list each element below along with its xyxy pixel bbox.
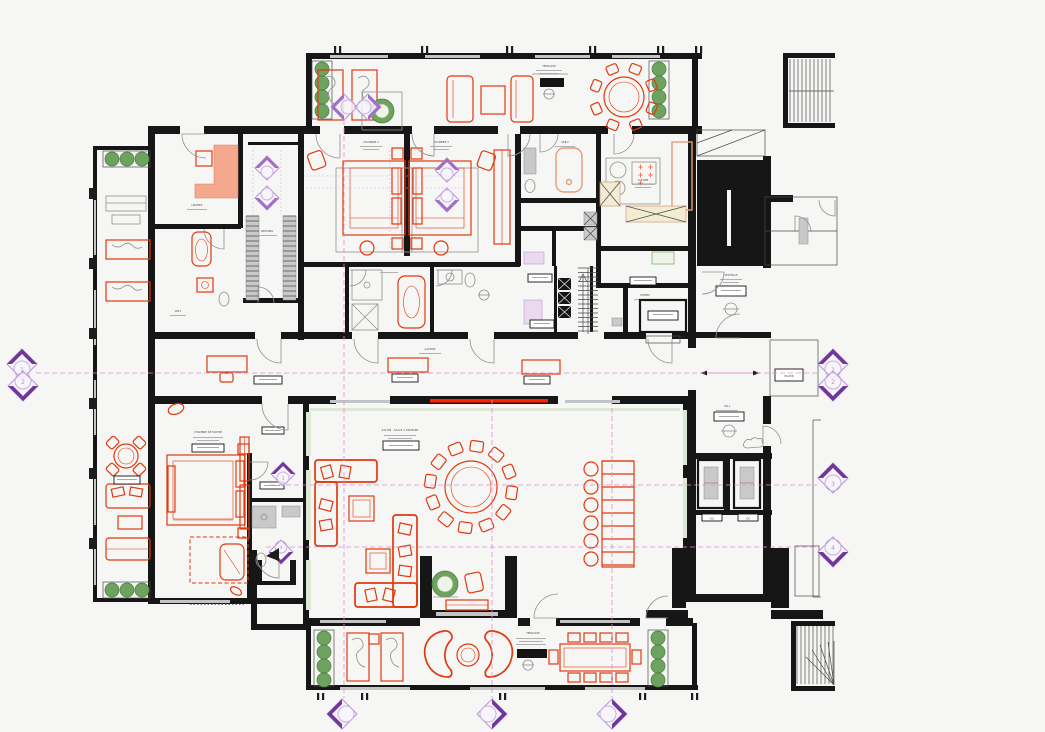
south-terrace: TERRASSE	[314, 630, 668, 687]
wall-openings-bg-r-17	[498, 126, 520, 134]
bath-2-grayf-r-2	[524, 148, 536, 174]
west-balcony-green-g-7-plant-1	[120, 152, 134, 166]
north-terrace-green-g-1-plant-2	[315, 90, 329, 104]
south-terrace-red-r-27	[584, 673, 596, 682]
wall-openings-bg-r-13	[640, 618, 666, 626]
south-terrace-red-r-4	[347, 633, 369, 681]
exterior-walls-wall-r-17	[552, 228, 556, 266]
south-terrace-green-g-1	[317, 631, 331, 687]
west-balcony-green-g-9-plant-0	[105, 583, 119, 597]
dimension-ticks-blkT-r-4	[506, 46, 508, 53]
service-rooms-labLn-r-3	[532, 277, 548, 278]
southeast-stairs-thin-p-1	[806, 641, 834, 685]
bath-2-salmonO-c-1	[567, 180, 572, 185]
wall-openings-bg-r-2	[352, 332, 378, 339]
living-dining-paleG-r-1	[306, 412, 311, 456]
bedroom-2-red-r-6	[392, 148, 403, 159]
bedroom-2-red-c-8	[360, 241, 374, 255]
exterior-walls-wall-r-2	[692, 53, 698, 130]
dimension-ticks-blkT-r-16	[499, 693, 501, 700]
exterior-walls-wall-r-15	[518, 198, 600, 203]
west-suite-salmonF-p-0	[195, 145, 238, 198]
living-dining-red-r-15	[339, 465, 351, 479]
gallery-corridor-red-r-4	[388, 358, 428, 372]
wall-openings-bg-r-14	[180, 126, 204, 134]
kitchen-gray-c-1	[610, 162, 626, 178]
living-dining-labLn-r-8	[384, 435, 416, 436]
bedroom-3-lab-t-12: CHAMBRE 3	[433, 140, 449, 144]
south-terrace-labLn-r-14	[516, 638, 546, 639]
exterior-walls-wall-r-24	[247, 498, 305, 502]
south-terrace-green-g-3-plant-3	[651, 673, 665, 687]
west-balcony-blkT-r-2	[89, 328, 97, 339]
living-dining-red-cr-31-chair-5	[426, 494, 441, 510]
exterior-walls-wall-r-56	[783, 123, 835, 128]
dimension-ticks-blkT-r-21	[696, 693, 698, 700]
west-balcony-blkT-r-3	[89, 398, 97, 409]
gallery-corridor-labLn-r-3	[259, 379, 277, 380]
northeast-core	[697, 59, 834, 156]
exterior-walls-wall-r-45	[505, 556, 517, 618]
south-terrace-red-r-23	[584, 633, 596, 642]
west-balcony-labLn-r-27	[117, 479, 137, 480]
kitchen-labLn-r-20	[635, 187, 651, 188]
master-suite-red-r-10	[168, 466, 175, 512]
entry-hall-labLn-r-2	[634, 280, 652, 281]
living-dining-red2-r-21	[355, 583, 417, 607]
south-terrace-green-g-1-plant-0	[317, 631, 331, 645]
entry-hall-labLn-r-7	[653, 314, 673, 315]
west-suite-lab-t-9: DRESSING	[261, 230, 274, 233]
south-terrace-red-r-7	[381, 633, 403, 681]
windows-win-r-7	[94, 200, 96, 255]
living-dining-paleG-r-3	[306, 560, 311, 610]
bedroom-2-red-r-4	[392, 198, 401, 224]
wall-openings-bg-r-19	[688, 612, 700, 617]
entry-hall-labBox-r-6	[648, 311, 678, 320]
south-terrace-green-g-1-plant-3	[317, 673, 331, 687]
bedroom-3-labLn-r-14	[433, 149, 449, 150]
living-dining-red-r-24	[398, 565, 411, 577]
master-suite-labLn-r-1	[193, 437, 223, 438]
living-dining-red-cr-31-chair-8	[448, 442, 464, 457]
elevator-block-lab-t-14: ASC	[710, 518, 715, 521]
west-suite-grayf-r-7	[283, 216, 296, 300]
living-dining-red-cr-31-chair-4	[437, 511, 454, 527]
west-balcony-blkT-r-0	[89, 188, 97, 199]
south-terrace-redT-r-21	[564, 648, 626, 667]
south-terrace-red-r-31	[632, 650, 641, 664]
living-dining-red-cr-31-chair-6	[424, 474, 436, 488]
kitchen-labLn-r-19	[632, 184, 654, 185]
living-dining-red-cr-31-chair-9	[470, 440, 484, 452]
south-terrace-red-r-24	[600, 633, 612, 642]
wall-openings-bg-r-3	[468, 332, 494, 339]
living-dining-red-r-22	[398, 523, 412, 535]
exterior-walls-wall-r-66	[697, 160, 767, 266]
exterior-walls-wall-r-32	[680, 594, 776, 602]
grid-markers-mkT-t-15: 2	[831, 379, 835, 386]
dimension-ticks-blkT-r-19	[644, 693, 646, 700]
master-suite-redT-l-16	[224, 550, 240, 574]
living-dining-paleG-r-2	[306, 470, 311, 540]
north-terrace-red-r-14	[511, 76, 533, 122]
master-bathroom-grayf-r-10	[282, 506, 300, 517]
wall-openings-bg-r-11	[420, 618, 518, 626]
bedroom-3-red-c-8	[434, 241, 448, 255]
windows-win-r-3	[612, 55, 660, 58]
exterior-walls-wall-r-55	[783, 53, 835, 58]
vestibule-lobby-labLn-r-4	[721, 290, 741, 291]
west-suite-labLn-r-10	[257, 235, 277, 236]
east-outline	[795, 420, 821, 597]
living-dining-red-cr-31-chair-0	[505, 486, 517, 500]
west-balcony-red-c-17	[114, 444, 138, 468]
doors-door-arc-4	[540, 134, 558, 152]
living-dining-red-r-32	[602, 461, 634, 567]
windows-win-r-12	[330, 400, 390, 403]
exterior-walls-wall-r-13	[298, 262, 520, 267]
west-balcony-sq-p-16	[112, 285, 142, 290]
exterior-walls	[93, 53, 835, 691]
west-balcony-red-cr-19	[105, 435, 146, 476]
windows-win-r-17	[436, 612, 498, 616]
west-suite-redT-e-12	[196, 239, 208, 261]
wall-openings-bg-r-12	[530, 618, 556, 626]
fireplace-nook	[432, 571, 488, 610]
north-terrace-red-r-13	[481, 86, 505, 114]
west-balcony-blkT-r-5	[89, 538, 97, 549]
bedroom-3-red-r-6	[411, 148, 422, 159]
north-terrace-green-g-3-plant-2	[652, 90, 666, 104]
south-terrace-redT-c-12	[461, 648, 475, 662]
dimension-ticks-blkT-r-20	[691, 693, 693, 700]
northeast-rooms-door-arc-4	[819, 200, 835, 216]
bedroom-3-red-r-9	[476, 150, 496, 171]
exterior-walls-wall-r-64	[290, 560, 296, 584]
north-terrace-red-cr-25-chair-4	[590, 79, 602, 93]
south-terrace-lab-t-13: TERRASSE	[526, 631, 540, 635]
south-terrace-green-g-3	[651, 631, 665, 687]
entry-hall-greenO-r-0	[652, 252, 674, 264]
living-dining-red-c-29	[445, 461, 497, 513]
north-terrace-redT-c-24	[609, 82, 639, 112]
bath-2-gray-e-3	[525, 180, 535, 193]
bath-2-lab-t-4: SDB 2	[561, 141, 569, 144]
north-terrace-labLn-r-22	[539, 73, 559, 74]
grid-markers-mkT-t-23: 4	[831, 545, 835, 552]
dimension-ticks-blkT-r-10	[695, 46, 697, 53]
south-terrace-red-r-28	[600, 673, 612, 682]
living-dining-red2-r-13	[315, 482, 337, 546]
north-terrace-green-g-1-plant-1	[315, 76, 329, 90]
living-dining-red-r-14	[321, 465, 334, 479]
bedroom-2: CHAMBRE 2	[307, 140, 412, 255]
elevator-block-gray-p-6	[743, 438, 763, 448]
master-suite-lab-t-0: CHAMBRE DE MAITRE	[194, 430, 222, 434]
windows	[94, 55, 660, 690]
windows-win-r-11	[94, 545, 96, 585]
north-terrace-red-r-11	[447, 76, 473, 122]
grid-markers-mkT-t-19: 3	[831, 481, 835, 488]
bath-2-labLn-r-5	[555, 146, 575, 147]
exterior-walls-wall-r-28	[688, 332, 771, 338]
exterior-walls-wall-r-51	[791, 621, 796, 691]
living-dining-red-cr-31	[424, 440, 518, 534]
living-dining-red-r-27	[366, 549, 390, 573]
gallery-corridor-labLn-r-6	[397, 377, 413, 378]
south-terrace-green-g-3-plant-2	[651, 659, 665, 673]
exterior-walls-wall-r-52	[791, 621, 835, 626]
south-terrace-green-g-1-plant-1	[317, 645, 331, 659]
living-dining-paleG-r-4	[683, 410, 687, 465]
south-terrace-red-r-6	[369, 634, 379, 644]
north-terrace-green-g-1-plant-0	[315, 62, 329, 76]
living-dining-red-r-17	[319, 519, 333, 531]
center-bathrooms-labLn-r-12	[380, 272, 398, 273]
south-terrace-red-r-26	[568, 673, 580, 682]
south-terrace-red2-p-10	[485, 631, 512, 677]
kitchen-lab-t-18: CUISINE	[638, 178, 649, 182]
north-terrace-lab-t-20: TERRASSE	[542, 64, 556, 68]
living-dining-redF-r-6	[430, 399, 548, 403]
center-bathrooms-redT-e-1	[404, 286, 420, 318]
bedroom-3-red-r-7	[411, 238, 422, 249]
bedroom-2-red-r-7	[392, 238, 403, 249]
windows-win-r-0	[330, 55, 388, 58]
elevator-block-labLn-r-1	[716, 410, 738, 411]
vestibule-lobby-thin-r-12	[770, 340, 818, 396]
vestibule-lobby-lab-t-8: PALIER	[784, 374, 794, 378]
west-suite-red-r-1	[196, 151, 212, 166]
wall-openings-bg-r-15	[320, 126, 344, 134]
gallery-corridor-lab-t-10: GALERIE	[424, 347, 435, 351]
vestibule-lobby-labLn-r-1	[723, 282, 739, 283]
west-balcony-green-g-7-plant-2	[135, 152, 149, 166]
exterior-walls-wall-r-8	[238, 128, 243, 228]
west-balcony-redT-c-18	[118, 448, 134, 464]
exterior-walls-wall-r-57	[763, 195, 793, 202]
living-dining-lab-t-7: SALON - SALLE A MANGER	[382, 428, 419, 432]
exterior-walls-wall-r-4	[148, 126, 155, 604]
exterior-walls-wall-r-62	[590, 266, 593, 336]
bedroom-3-red-r-4	[413, 198, 422, 224]
exterior-walls-wall-r-34	[306, 623, 311, 689]
living-dining-redT-c-30	[451, 467, 491, 507]
west-balcony-blkT-r-4	[89, 468, 97, 479]
northeast-rooms	[765, 197, 837, 265]
elevator-block-labLn-r-3	[719, 416, 739, 417]
west-suite-lab-t-16: SDB 3	[175, 310, 182, 313]
gallery-corridor-labLn-r-9	[529, 379, 545, 380]
bedroom-2-lab-t-10: CHAMBRE 2	[363, 140, 379, 144]
doors-door-arc-8	[470, 339, 494, 363]
south-terrace-red-r-25	[616, 633, 628, 642]
gallery-corridor-red-r-0	[207, 356, 247, 372]
bath-2-salmonO-r-0	[556, 148, 582, 192]
south-terrace-labLn-r-16	[516, 644, 546, 645]
west-balcony	[89, 151, 150, 598]
center-bathrooms-red-r-0	[398, 276, 425, 328]
master-suite-redT-r-7	[173, 461, 233, 519]
west-balcony-sq-p-14	[112, 243, 142, 248]
living-dining-labLn-r-9	[388, 438, 412, 439]
exterior-walls-wall-r-48	[771, 548, 789, 608]
bedroom-3-labLn-r-13	[430, 146, 452, 147]
windows-win-r-4	[340, 687, 410, 690]
windows-win-r-16	[160, 600, 230, 603]
exterior-walls-wall-r-1	[306, 53, 312, 130]
west-balcony-green-g-7	[105, 152, 149, 166]
exterior-walls-wall-r-39	[93, 598, 152, 602]
south-terrace-red2-p-9	[425, 631, 452, 677]
north-terrace-red-cr-25-chair-6	[628, 63, 642, 75]
exterior-walls-wall-r-38	[93, 146, 152, 150]
north-terrace-green-g-3-plant-3	[652, 104, 666, 118]
wall-openings-bg-r-6	[262, 396, 288, 404]
south-terrace-red-r-30	[549, 650, 558, 664]
south-terrace-green-g-3-plant-0	[651, 631, 665, 645]
dimension-ticks-blkT-r-2	[421, 46, 423, 53]
west-balcony-green-g-9-plant-2	[135, 583, 149, 597]
north-terrace-red-cr-25-chair-3	[590, 102, 603, 116]
west-suite-labLn-r-17	[170, 315, 186, 316]
entry-hall-grayf-r-9	[612, 318, 622, 326]
living-dining-red-c-37	[584, 516, 598, 530]
exterior-walls-wall-r-14	[596, 130, 601, 288]
dimension-ticks-blkT-r-1	[339, 46, 341, 53]
windows-win-r-2	[535, 55, 590, 58]
dimension-ticks-blkT-r-13	[322, 693, 324, 700]
living-dining-red-s-33	[602, 461, 634, 565]
exterior-walls-wall-r-61	[554, 266, 557, 336]
exterior-walls-wall-r-58	[598, 246, 690, 251]
dimension-ticks-blkT-r-6	[589, 46, 591, 53]
center-bathrooms-gray-e-6	[465, 273, 475, 287]
service-rooms-lavF-r-0	[524, 252, 544, 264]
windows-win-r-6	[585, 687, 645, 690]
doors-door-arc-7	[354, 339, 378, 363]
doors-door-arc-17	[534, 594, 558, 618]
south-terrace-sq-p-8	[386, 638, 399, 667]
wall-openings-bg-r-18	[608, 126, 632, 134]
north-terrace-red-cr-25	[590, 63, 658, 131]
windows-win-r-15	[560, 620, 630, 623]
doors-door-arc-6	[257, 339, 281, 363]
doors-door-arc-21	[250, 462, 268, 480]
master-suite-red-e-17	[229, 585, 243, 597]
service-rooms-thin-p-17	[579, 274, 587, 332]
south-terrace-green-g-1-plant-2	[317, 659, 331, 673]
elevator-block: HALLASCASC	[698, 405, 763, 521]
south-terrace-green-g-3-plant-1	[651, 645, 665, 659]
west-balcony-red-r-21	[111, 487, 124, 497]
west-balcony-gray-r-10	[106, 196, 146, 211]
grid-markers-mkT-t-27: 3	[282, 476, 285, 482]
master-suite-labLn-r-4	[197, 447, 219, 448]
service-rooms-labLn-r-5	[534, 323, 550, 324]
exterior-walls-wall-r-29	[686, 453, 772, 459]
west-suite-grayf-r-5	[246, 216, 259, 300]
bedroom-2-labLn-r-11	[360, 146, 382, 147]
bedroom-2-labLn-r-12	[363, 149, 379, 150]
dimension-ticks-blkT-r-0	[334, 46, 336, 53]
northeast-core-thin-s-3	[790, 59, 830, 122]
living-dining-paleG-r-0	[310, 408, 680, 411]
master-suite-labLn-r-2	[197, 440, 219, 441]
gallery-corridor-red-r-1	[220, 373, 233, 382]
west-suite-red-r-13	[197, 278, 213, 292]
west-suite-redT-c-14	[202, 282, 209, 289]
dimension-ticks-blkT-r-7	[594, 46, 596, 53]
exterior-walls-wall-r-9	[153, 224, 241, 229]
south-terrace-labLn-r-15	[519, 641, 543, 642]
exterior-walls-wall-r-7	[298, 130, 304, 340]
living-dining-labLn-r-11	[389, 445, 413, 446]
dimension-ticks-blkT-r-17	[504, 693, 506, 700]
east-outline-thin-r-3	[795, 546, 819, 596]
west-balcony-green-g-7-plant-0	[105, 152, 119, 166]
entry-hall-lab-t-3: ENTREE	[640, 294, 650, 297]
exterior-walls-wall-r-35	[692, 623, 697, 689]
doors-door-arc-5	[614, 134, 634, 154]
living-dining-paleG-r-5	[683, 478, 687, 538]
north-terrace-red-cr-25-chair-5	[605, 63, 619, 76]
west-suite-labLn-r-3	[187, 209, 207, 210]
exterior-walls-wall-r-18	[345, 266, 349, 334]
grid-markers-mkT-t-7: 2	[21, 379, 25, 386]
exterior-walls-wall-r-43	[251, 624, 309, 630]
southeast-stairs	[797, 626, 834, 685]
fireplace-nook-red-r-3	[464, 572, 484, 594]
windows-win-r-1	[425, 55, 480, 58]
exterior-walls-wall-r-20	[148, 332, 690, 339]
north-terrace-blkBox-r-17	[540, 78, 564, 87]
west-balcony-gray-r-12	[112, 215, 140, 224]
living-dining-red-c-35	[584, 480, 598, 494]
exterior-walls-wall-r-65	[256, 581, 296, 585]
north-terrace-green-g-3-plant-0	[652, 62, 666, 76]
exterior-walls-wall-r-50	[771, 610, 823, 619]
exterior-walls-wall-r-54	[783, 53, 788, 128]
west-suite-gray-e-15	[219, 292, 229, 306]
elevator-block-lab-t-0: HALL	[724, 405, 731, 408]
living-dining-red-cr-31-chair-10	[488, 446, 505, 462]
doors-door-arc-1	[316, 134, 340, 158]
north-terrace-labLn-r-21	[536, 70, 562, 71]
northeast-core-thin-l-2	[697, 130, 732, 143]
wall-openings-bg-r-1	[255, 332, 281, 339]
bedroom-3-red-r-3	[413, 168, 422, 194]
north-terrace-green-g-3-plant-1	[652, 76, 666, 90]
dimension-ticks-blkT-r-11	[700, 46, 702, 53]
northeast-rooms-grayf-r-2	[799, 218, 808, 244]
living-dining-red-cr-31-chair-7	[430, 453, 446, 470]
exterior-walls-wall-r-19	[430, 266, 434, 334]
doors-door-arc-0	[182, 134, 206, 158]
kitchen-redT-p-4	[638, 165, 653, 186]
bedroom-2-red-r-3	[392, 168, 401, 194]
wall-openings-bg-r-0	[727, 190, 731, 246]
wall-openings-bg-r-16	[412, 126, 434, 134]
dimension-ticks-blkT-r-3	[426, 46, 428, 53]
center-bathrooms	[352, 270, 490, 330]
dimension-ticks-blkT-r-14	[361, 693, 363, 700]
living-dining-redT-r-19	[353, 500, 370, 517]
west-balcony-red-r-22	[129, 487, 142, 497]
south-terrace-red-r-22	[568, 633, 580, 642]
grid-markers-mkT-t-31: 4	[280, 545, 283, 551]
